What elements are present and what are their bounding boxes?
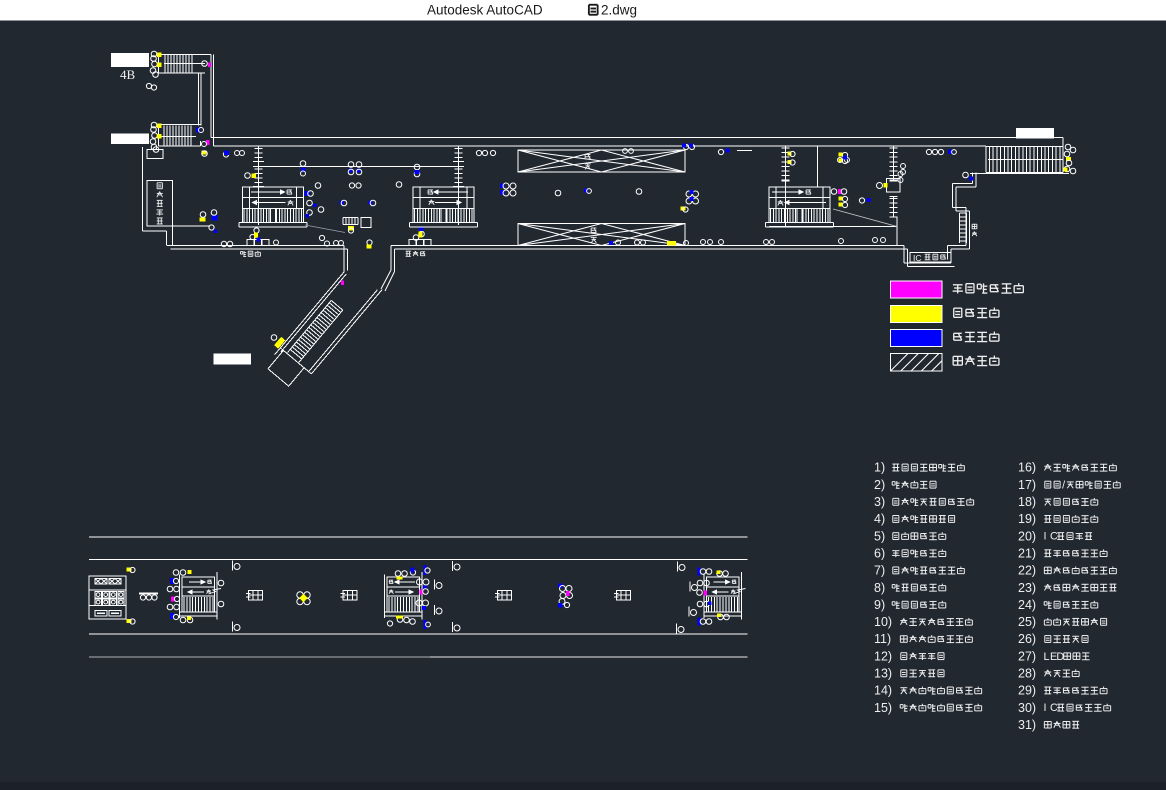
svg-text:15): 15) (874, 701, 892, 715)
svg-text:4B: 4B (120, 67, 136, 82)
svg-text:/: / (1062, 479, 1065, 491)
svg-text:8): 8) (874, 581, 885, 595)
svg-text:5): 5) (874, 529, 885, 543)
svg-text:17): 17) (1018, 478, 1036, 492)
svg-text:22): 22) (1018, 564, 1036, 578)
svg-text:9): 9) (874, 598, 885, 612)
svg-text:L: L (1044, 651, 1050, 663)
svg-text:2): 2) (874, 478, 885, 492)
svg-text:28): 28) (1018, 667, 1036, 681)
svg-text:C: C (1050, 531, 1058, 543)
svg-text:24): 24) (1018, 598, 1036, 612)
svg-text:11): 11) (874, 632, 891, 646)
svg-text:13): 13) (874, 667, 892, 681)
svg-text:I: I (1044, 531, 1047, 543)
svg-text:7): 7) (874, 564, 885, 578)
svg-text:4): 4) (874, 512, 885, 526)
svg-text:12): 12) (874, 649, 892, 663)
svg-text:25): 25) (1018, 615, 1036, 629)
svg-text:C: C (1050, 702, 1058, 714)
svg-text:30): 30) (1018, 701, 1036, 715)
svg-text:6): 6) (874, 547, 885, 561)
svg-text:IC: IC (913, 253, 922, 263)
svg-text:23): 23) (1018, 581, 1036, 595)
svg-text:1): 1) (874, 461, 885, 475)
svg-text:16): 16) (1018, 461, 1036, 475)
svg-text:Autodesk AutoCAD: Autodesk AutoCAD (427, 3, 543, 18)
svg-text:19): 19) (1018, 512, 1036, 526)
svg-text:26): 26) (1018, 632, 1036, 646)
svg-text:14): 14) (874, 684, 892, 698)
svg-text:20): 20) (1018, 529, 1036, 543)
svg-text:2.dwg: 2.dwg (601, 3, 637, 18)
svg-text:D: D (1056, 651, 1064, 663)
svg-text:29): 29) (1018, 684, 1036, 698)
svg-text:27): 27) (1018, 649, 1036, 663)
svg-text:21): 21) (1018, 547, 1036, 561)
svg-text:18): 18) (1018, 495, 1036, 509)
svg-text:3): 3) (874, 495, 885, 509)
svg-text:31): 31) (1018, 718, 1036, 732)
svg-text:10): 10) (874, 615, 892, 629)
svg-text:I: I (1044, 702, 1047, 714)
